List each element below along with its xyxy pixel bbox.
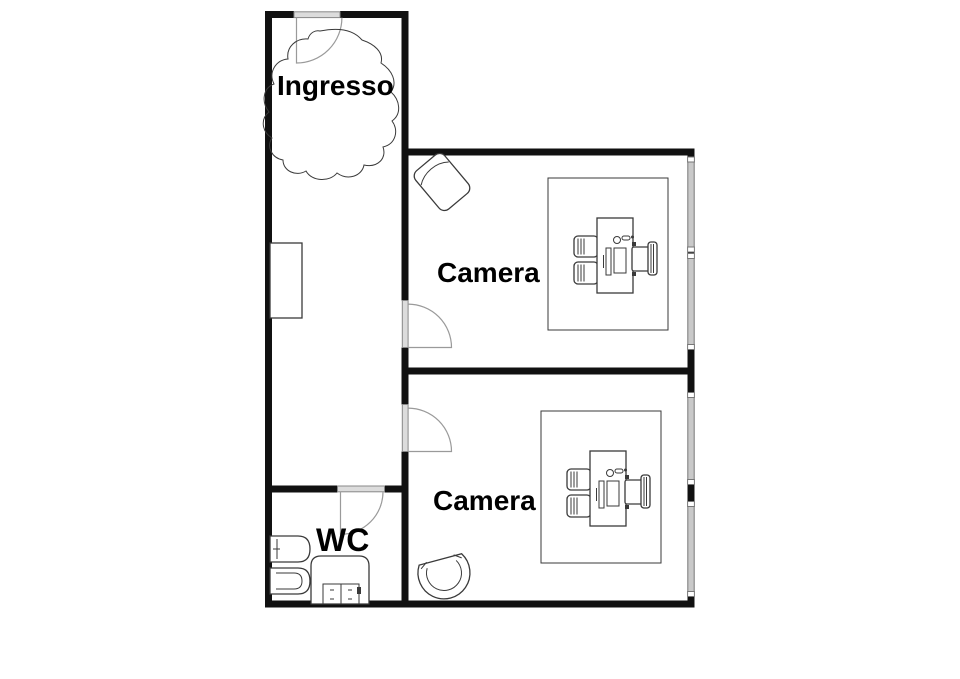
desk-set-icon bbox=[541, 411, 661, 563]
window-icon bbox=[688, 502, 695, 597]
tub-chair-icon bbox=[415, 552, 476, 605]
toilet-icon bbox=[270, 536, 310, 562]
wardrobe-icon bbox=[270, 243, 302, 318]
bidet-icon bbox=[270, 568, 310, 594]
window-icon bbox=[688, 393, 695, 485]
door-icon-camera-1 bbox=[402, 301, 451, 348]
floor-plan: Ingresso Camera Camera WC bbox=[0, 0, 960, 679]
window-icon bbox=[688, 157, 695, 252]
desk-set-icon bbox=[548, 178, 668, 330]
door-icon-camera-2 bbox=[402, 405, 451, 452]
floor-plan-canvas: Ingresso Camera Camera WC bbox=[0, 0, 960, 679]
shower-icon bbox=[311, 556, 369, 604]
armchair-icon bbox=[411, 151, 472, 214]
room-label-ingresso: Ingresso bbox=[277, 70, 394, 101]
room-label-camera-1: Camera bbox=[437, 257, 540, 288]
room-label-camera-2: Camera bbox=[433, 485, 536, 516]
room-label-wc: WC bbox=[316, 522, 369, 558]
rug-blob-icon bbox=[263, 29, 398, 179]
entrance-door-icon bbox=[294, 12, 342, 63]
window-icon bbox=[688, 254, 695, 350]
